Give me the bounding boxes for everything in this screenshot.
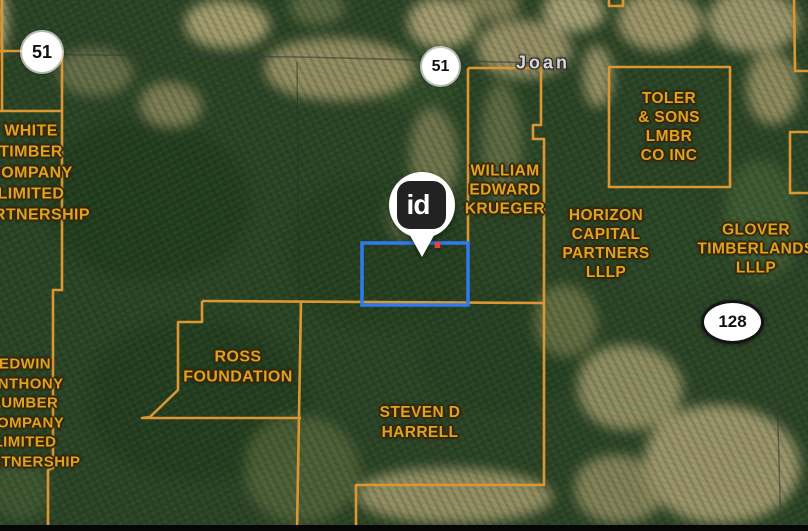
owner-label-line: WILLIAM bbox=[465, 162, 545, 181]
owner-label-line: LIMITED bbox=[0, 433, 80, 453]
owner-label-line: HARRELL bbox=[380, 423, 461, 443]
owner-label-line: & SONS bbox=[638, 108, 700, 127]
map-pin[interactable]: id . bbox=[389, 172, 455, 262]
owner-label-william-krueger: WILLIAM EDWARD KRUEGER bbox=[465, 162, 545, 219]
owner-label-toler-sons: TOLER & SONS LMBR CO INC bbox=[638, 89, 700, 165]
owner-label-line: FOUNDATION bbox=[183, 367, 292, 387]
highway-shield-number: 51 bbox=[432, 58, 450, 76]
owner-label-steven-harrell: STEVEN D HARRELL bbox=[380, 403, 461, 443]
boundary-overlay bbox=[0, 0, 808, 531]
owner-label-line: LUMBER bbox=[0, 394, 80, 414]
owner-label-line: TIMBER bbox=[0, 142, 90, 163]
owner-label-line: STEVEN D bbox=[380, 403, 461, 423]
owner-label-line: LLLP bbox=[562, 263, 649, 282]
owner-label-line: EDWIN bbox=[0, 355, 80, 375]
owner-label-line: HORIZON bbox=[562, 206, 649, 225]
owner-label-line: EDWARD bbox=[465, 181, 545, 200]
owner-label-line: GLOVER bbox=[697, 221, 808, 240]
owner-label-glover-timberlands: GLOVER TIMBERLANDS LLLP bbox=[697, 221, 808, 278]
highway-shield-128: 128 bbox=[701, 300, 764, 344]
owner-label-line: PARTNERS bbox=[562, 244, 649, 263]
highway-shield-number: 128 bbox=[718, 312, 746, 332]
owner-label-line: PARTNERSHIP bbox=[0, 452, 80, 472]
map-canvas[interactable]: WHITE TIMBER COMPANY LIMITED PARTNERSHIP… bbox=[0, 0, 808, 531]
owner-label-line: ANTHONY bbox=[0, 374, 80, 394]
owner-label-line: COMPANY bbox=[0, 413, 80, 433]
place-label: Joan bbox=[516, 53, 570, 74]
owner-label-line: KRUEGER bbox=[465, 200, 545, 219]
land-id-logo: id . bbox=[397, 181, 446, 229]
owner-label-line: LMBR bbox=[638, 127, 700, 146]
bottom-letterbox-bar bbox=[0, 525, 808, 531]
owner-label-line: LIMITED bbox=[0, 184, 90, 205]
owner-label-line: COMPANY bbox=[0, 163, 90, 184]
parcel-boundaries bbox=[0, 0, 808, 531]
owner-label-line: CO INC bbox=[638, 146, 700, 165]
owner-label-line: LLLP bbox=[697, 259, 808, 278]
owner-label-line: CAPITAL bbox=[562, 225, 649, 244]
owner-label-line: WHITE bbox=[0, 121, 90, 142]
owner-label-line: ROSS bbox=[183, 348, 292, 368]
owner-label-line: TOLER bbox=[638, 89, 700, 108]
owner-label-white-timber: WHITE TIMBER COMPANY LIMITED PARTNERSHIP bbox=[0, 121, 90, 226]
owner-label-line: PARTNERSHIP bbox=[0, 205, 90, 226]
owner-label-edwin-anthony: EDWIN ANTHONY LUMBER COMPANY LIMITED PAR… bbox=[0, 355, 80, 472]
owner-label-ross-foundation: ROSS FOUNDATION bbox=[183, 348, 292, 387]
highway-shield-51-nw: 51 bbox=[22, 32, 62, 72]
owner-label-line: TIMBERLANDS bbox=[697, 240, 808, 259]
owner-label-horizon-capital: HORIZON CAPITAL PARTNERS LLLP bbox=[562, 206, 649, 282]
highway-shield-51-center: 51 bbox=[422, 48, 459, 85]
highway-shield-number: 51 bbox=[32, 42, 52, 63]
